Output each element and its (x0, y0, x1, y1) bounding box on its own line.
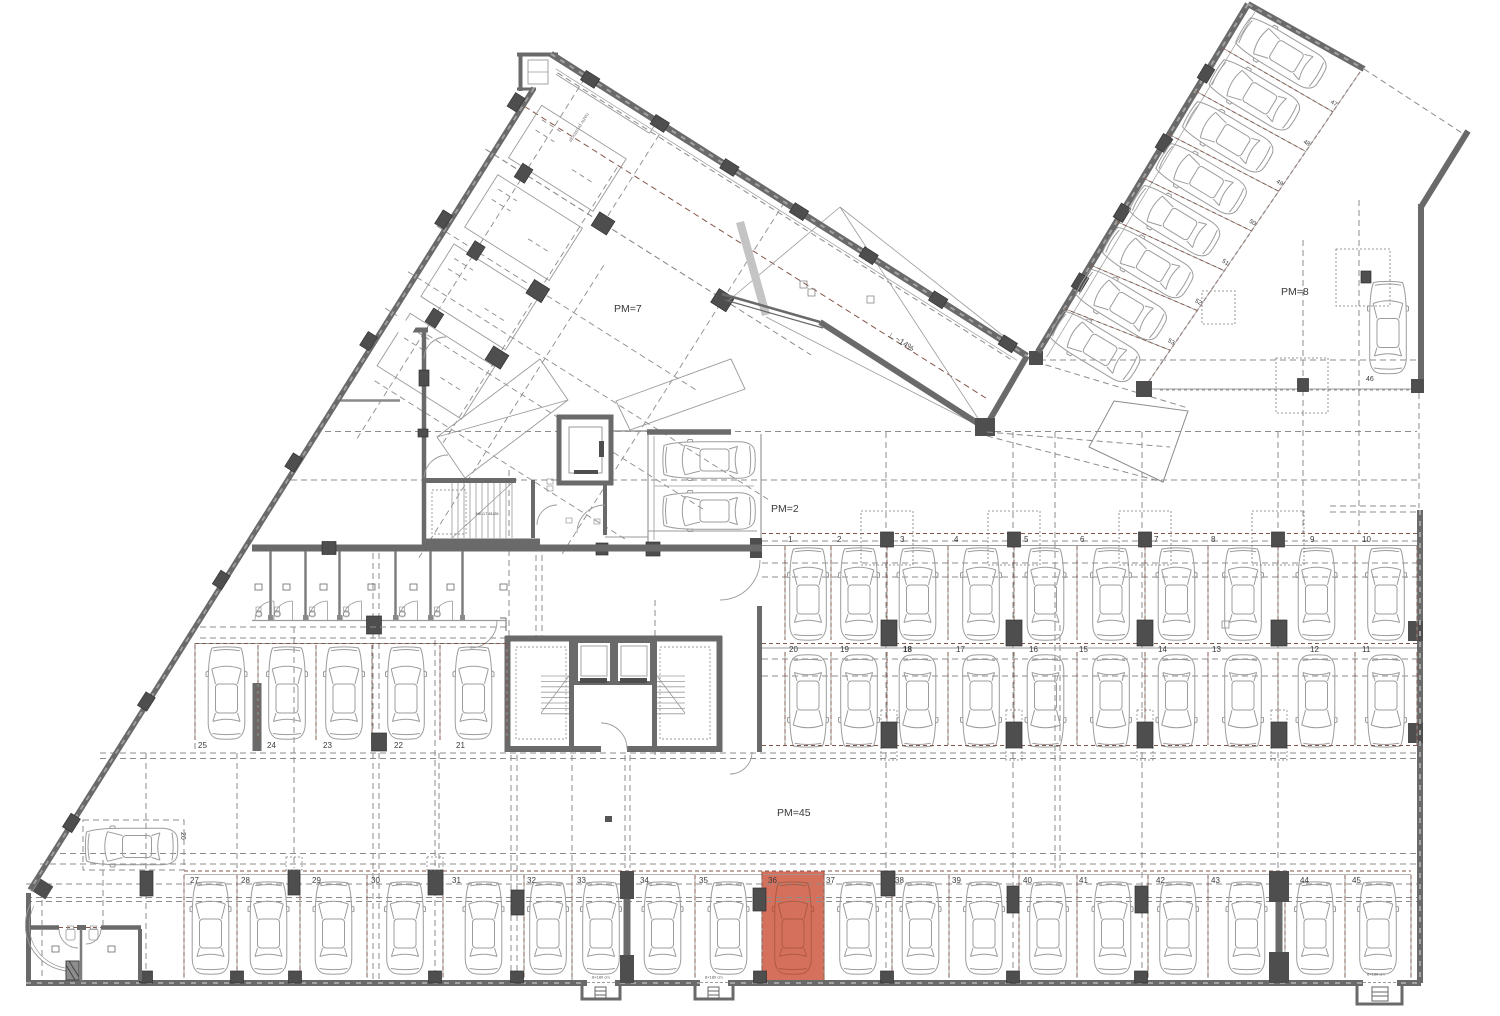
svg-text:44: 44 (1300, 876, 1309, 885)
svg-text:23: 23 (323, 741, 332, 750)
svg-text:25: 25 (198, 741, 207, 750)
svg-text:3: 3 (900, 535, 905, 544)
svg-text:46: 46 (1366, 376, 1374, 383)
svg-text:15: 15 (1079, 645, 1088, 654)
svg-text:8×180 cm: 8×180 cm (1367, 972, 1385, 977)
svg-text:29: 29 (312, 876, 321, 885)
svg-text:22: 22 (394, 741, 403, 750)
svg-text:30: 30 (371, 876, 380, 885)
svg-text:5: 5 (1024, 535, 1029, 544)
svg-text:6: 6 (1080, 535, 1085, 544)
svg-text:PM=2: PM=2 (771, 503, 799, 515)
svg-text:NK-17.61/26: NK-17.61/26 (476, 511, 499, 516)
svg-text:35: 35 (699, 876, 708, 885)
svg-text:34: 34 (640, 876, 649, 885)
svg-text:PM=7: PM=7 (614, 303, 642, 315)
svg-text:39: 39 (952, 876, 961, 885)
svg-text:2: 2 (837, 535, 842, 544)
svg-text:9: 9 (1310, 535, 1315, 544)
svg-text:11: 11 (1362, 645, 1371, 654)
svg-text:33: 33 (577, 876, 586, 885)
svg-text:7: 7 (1154, 535, 1159, 544)
svg-text:16: 16 (1029, 645, 1038, 654)
svg-text:PM=45: PM=45 (777, 807, 811, 819)
svg-text:8×180 cm: 8×180 cm (705, 975, 723, 980)
svg-text:20: 20 (789, 645, 798, 654)
svg-text:28: 28 (241, 876, 250, 885)
svg-text:4: 4 (954, 535, 959, 544)
svg-text:36: 36 (768, 876, 777, 885)
svg-text:37: 37 (826, 876, 835, 885)
svg-text:21: 21 (456, 741, 465, 750)
svg-text:8×180 cm: 8×180 cm (592, 975, 610, 980)
svg-text:40: 40 (1023, 876, 1032, 885)
svg-text:41: 41 (1079, 876, 1088, 885)
svg-text:18: 18 (903, 645, 912, 654)
svg-text:12: 12 (1310, 645, 1319, 654)
svg-text:10: 10 (1362, 535, 1371, 544)
svg-text:19: 19 (840, 645, 849, 654)
svg-text:27: 27 (190, 876, 199, 885)
svg-text:24: 24 (267, 741, 276, 750)
svg-text:14: 14 (1158, 645, 1167, 654)
svg-text:PM=8: PM=8 (1281, 286, 1309, 298)
svg-text:38: 38 (895, 876, 904, 885)
svg-text:8: 8 (1211, 535, 1216, 544)
svg-text:31: 31 (452, 876, 461, 885)
svg-text:43: 43 (1211, 876, 1220, 885)
svg-text:42: 42 (1156, 876, 1165, 885)
svg-text:26: 26 (179, 832, 186, 840)
svg-text:13: 13 (1212, 645, 1221, 654)
svg-text:45: 45 (1352, 876, 1361, 885)
svg-text:1: 1 (788, 535, 793, 544)
svg-text:32: 32 (527, 876, 536, 885)
svg-text:17: 17 (956, 645, 965, 654)
